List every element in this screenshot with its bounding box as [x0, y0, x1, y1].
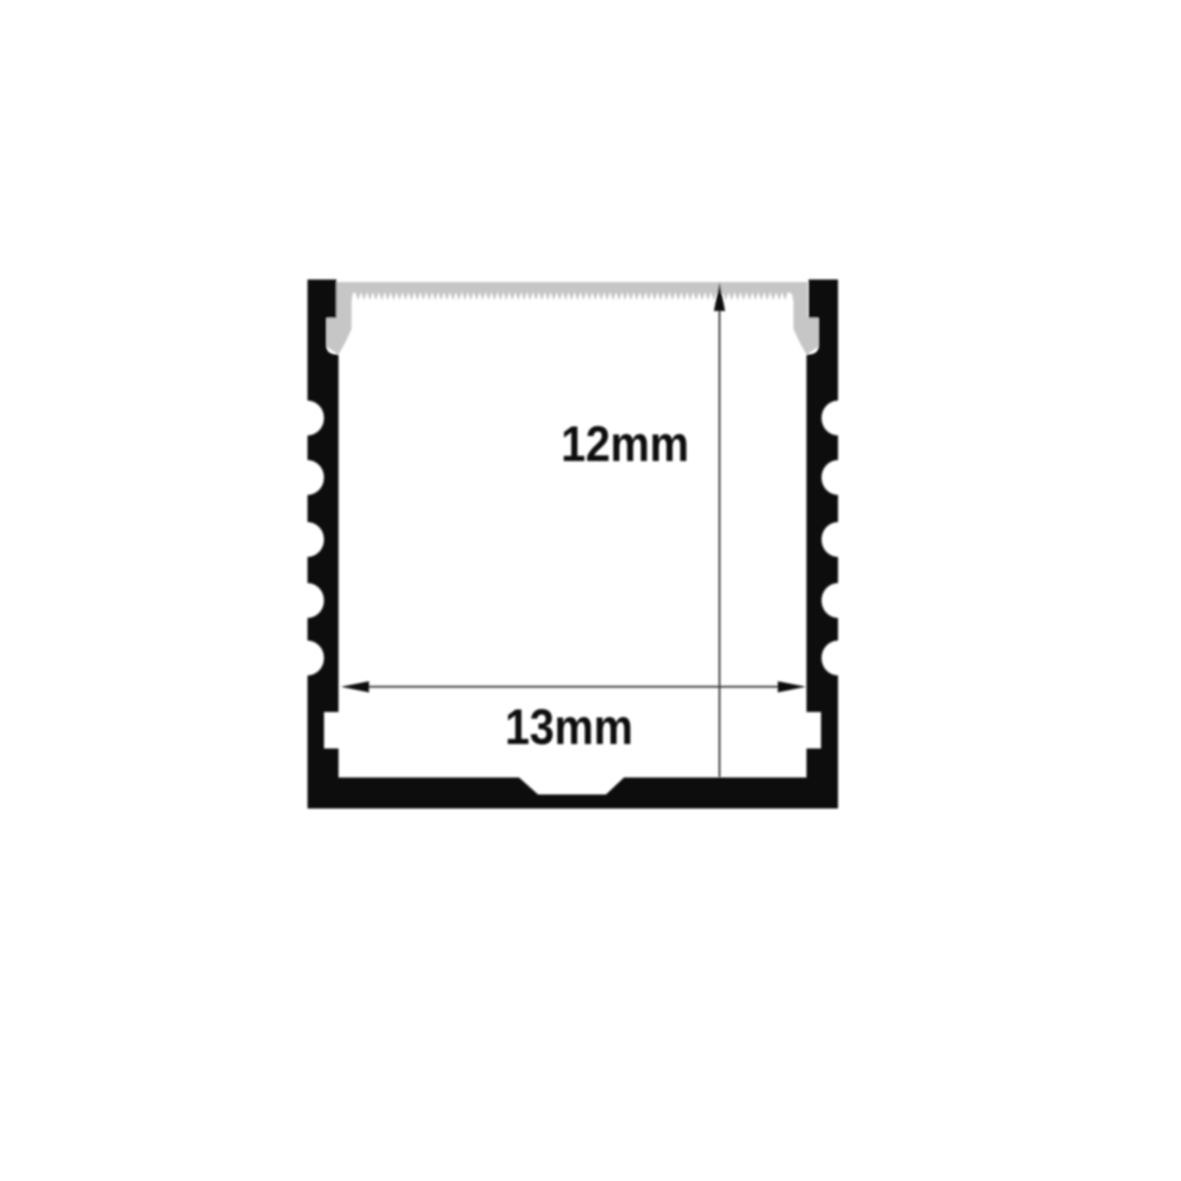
svg-text:12mm: 12mm — [561, 416, 689, 472]
svg-text:13mm: 13mm — [505, 699, 633, 755]
